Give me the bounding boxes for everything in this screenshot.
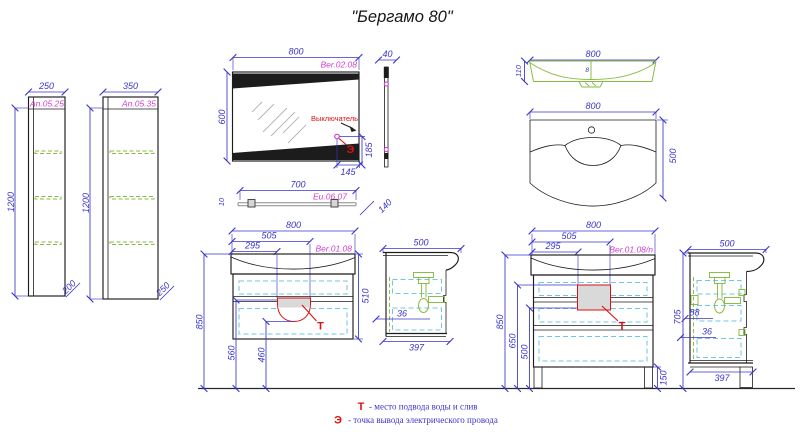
shelf-bracket (331, 200, 338, 208)
legend-electric-symbol: Э (334, 415, 342, 427)
shelf-dashes (35, 151, 61, 245)
basin-bowl (565, 138, 621, 166)
drain-zone (578, 285, 611, 310)
legend-electric-text: - точка вывода электрического провода (348, 415, 498, 425)
drawer-hidden-outline (697, 281, 741, 295)
leg (534, 367, 542, 388)
product-code: Ber.01.08 (315, 244, 352, 254)
view-tall-cabinet-large: 350 An.05.35 1200 250 (81, 81, 174, 300)
dim-height-label: 600 (217, 109, 227, 124)
technical-drawing-page: "Бергамо 80" 250 An.05.25 1200 200 350 A… (0, 0, 800, 436)
leg (740, 367, 753, 388)
view-mirror-front: 800 Ber.02.08 600 Выключатель Э 185 145 (217, 47, 374, 178)
view-washbasin-front: 800 500 (530, 101, 678, 206)
faucet-hole (588, 127, 594, 133)
siphon-drawing (710, 273, 741, 314)
view-washbasin-top: 800 110 8 (514, 49, 656, 87)
shelf-bracket (248, 200, 255, 208)
dim-bottom-depth-label: 397 (409, 343, 425, 353)
drawer-hidden-outline (697, 339, 741, 358)
dim-drain-left-label: 295 (544, 241, 561, 251)
drawer-hidden-outline (539, 309, 647, 323)
dim-switch-h-label: 145 (340, 167, 356, 177)
view-vanity-floor-front: 800 505 295 Ber.01.08/n Т 150 850 650 (495, 220, 669, 389)
switch-point (335, 134, 340, 139)
product-code: An.05.25 (29, 99, 64, 109)
hinge-mark (691, 296, 698, 305)
mirror-bottom-band (233, 144, 360, 161)
dim-width-label: 800 (286, 220, 301, 230)
page-title: "Бергамо 80" (351, 8, 454, 26)
dim-width-label: 350 (123, 81, 138, 91)
dim-pipe-offset-label: 36 (702, 327, 712, 337)
view-shelf: 700 Eu.06.07 10 (217, 180, 356, 208)
drawer-hidden-outline (239, 281, 347, 294)
dim-drain-right-label: 505 (261, 231, 277, 241)
dim-width-label: 250 (38, 81, 54, 91)
dim-thickness-label: 10 (217, 197, 226, 206)
dim-height-label: 1200 (6, 192, 16, 212)
drawer-hidden-outline (393, 280, 442, 294)
dim-drain-top-label: 650 (508, 333, 518, 348)
dim-leg-height-label: 150 (659, 370, 669, 385)
view-tall-cabinet-small: 250 An.05.25 1200 200 (6, 81, 80, 297)
dim-width-label: 800 (585, 101, 600, 111)
electric-point-symbol: Э (347, 144, 355, 156)
dim-depth-label: 40 (382, 49, 392, 59)
view-vanity-floor-side: 500 705 88 36 397 (673, 239, 767, 389)
mirror-top-band (233, 74, 360, 89)
dim-depth-label: 110 (514, 64, 523, 77)
dim-drain-top-label: 560 (227, 345, 237, 360)
leg (645, 367, 653, 388)
dim-depth-label: 250 (153, 280, 171, 298)
washbasin-top-outline (530, 61, 657, 87)
dim-height-label: 500 (668, 148, 678, 163)
dim-drain-bottom-label: 500 (520, 344, 530, 359)
dim-width-label: 800 (586, 220, 601, 230)
mirror-side-cap (384, 67, 389, 78)
siphon-drawing (414, 273, 445, 313)
view-vanity-wall-front: 800 505 295 Ber.01.08 Т 510 850 560 460 (195, 220, 371, 389)
shelf-dashes (110, 151, 154, 245)
mount-point (384, 82, 388, 86)
product-code: Eu.06.07 (313, 192, 347, 202)
legend: Т - место подвода воды и слив Э - точка … (334, 401, 498, 427)
legend-water-text: - место подвода воды и слив (369, 402, 478, 412)
dim-depth-label: 500 (719, 239, 734, 249)
dim-drain-label: 8 (585, 67, 589, 74)
drawer-hidden-outline (539, 337, 647, 362)
water-point-symbol: Т (619, 321, 626, 333)
legend-water-symbol: Т (358, 401, 365, 413)
dim-a-label: 88 (689, 308, 699, 318)
view-mirror-side: 40 140 (360, 49, 397, 215)
dim-width-label: 800 (585, 49, 600, 59)
dim-height-label: 510 (361, 288, 371, 303)
product-code: Ber.02.08 (320, 60, 357, 70)
dim-drain-bottom-label: 460 (257, 347, 267, 362)
switch-callout-label: Выключатель (311, 114, 358, 123)
water-point-symbol: Т (317, 321, 324, 333)
product-code: Ber.01.08/n (609, 245, 653, 255)
dim-switch-v-label: 185 (364, 142, 374, 158)
mirror-hatch (252, 102, 306, 143)
product-code: An.05.35 (121, 99, 156, 109)
dim-width-label: 700 (290, 180, 305, 190)
dim-depth-label: 500 (413, 238, 428, 248)
dim-mount-height-label: 850 (495, 314, 505, 329)
dim-width-label: 800 (288, 47, 303, 57)
dim-height-label: 705 (673, 309, 683, 325)
dim-drain-left-label: 295 (244, 241, 261, 251)
dim-bottom-depth-label: 397 (714, 373, 730, 383)
dim-mount-height-label: 850 (195, 314, 205, 329)
dim-depth-label: 200 (59, 278, 77, 296)
dim-pipe-offset-label: 36 (397, 309, 407, 319)
drawing: "Бергамо 80" 250 An.05.25 1200 200 350 A… (0, 0, 800, 436)
dim-height-label: 1200 (81, 193, 91, 213)
view-vanity-wall-side: 500 36 397 (376, 238, 461, 353)
mount-point (384, 148, 388, 152)
washbasin-front-outline (530, 120, 656, 206)
dim-drain-right-label: 505 (561, 231, 577, 241)
dim-depth-diag-label: 140 (376, 197, 394, 215)
